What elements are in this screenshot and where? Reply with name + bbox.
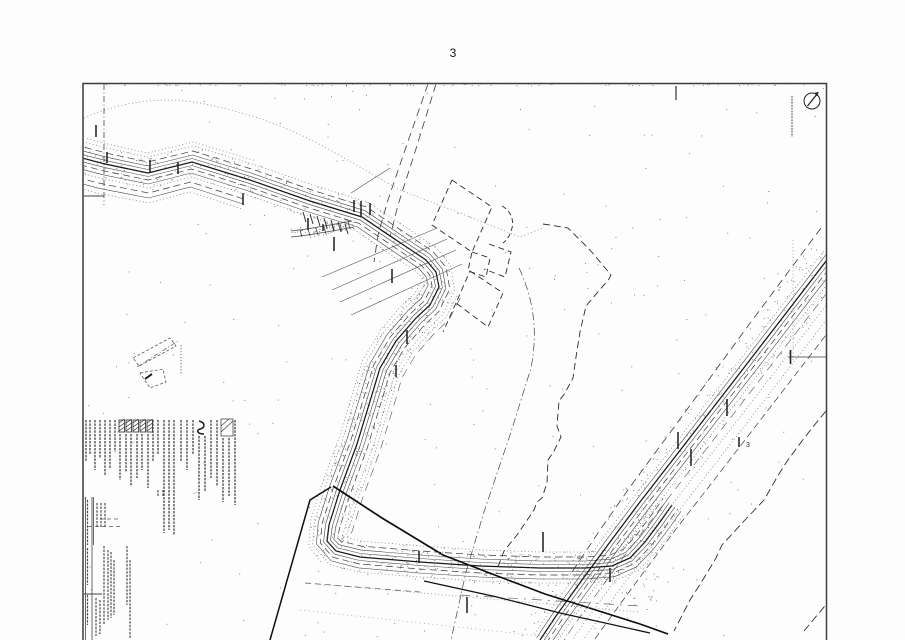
svg-text:3: 3 [450,46,457,60]
svg-text:3: 3 [746,442,750,449]
